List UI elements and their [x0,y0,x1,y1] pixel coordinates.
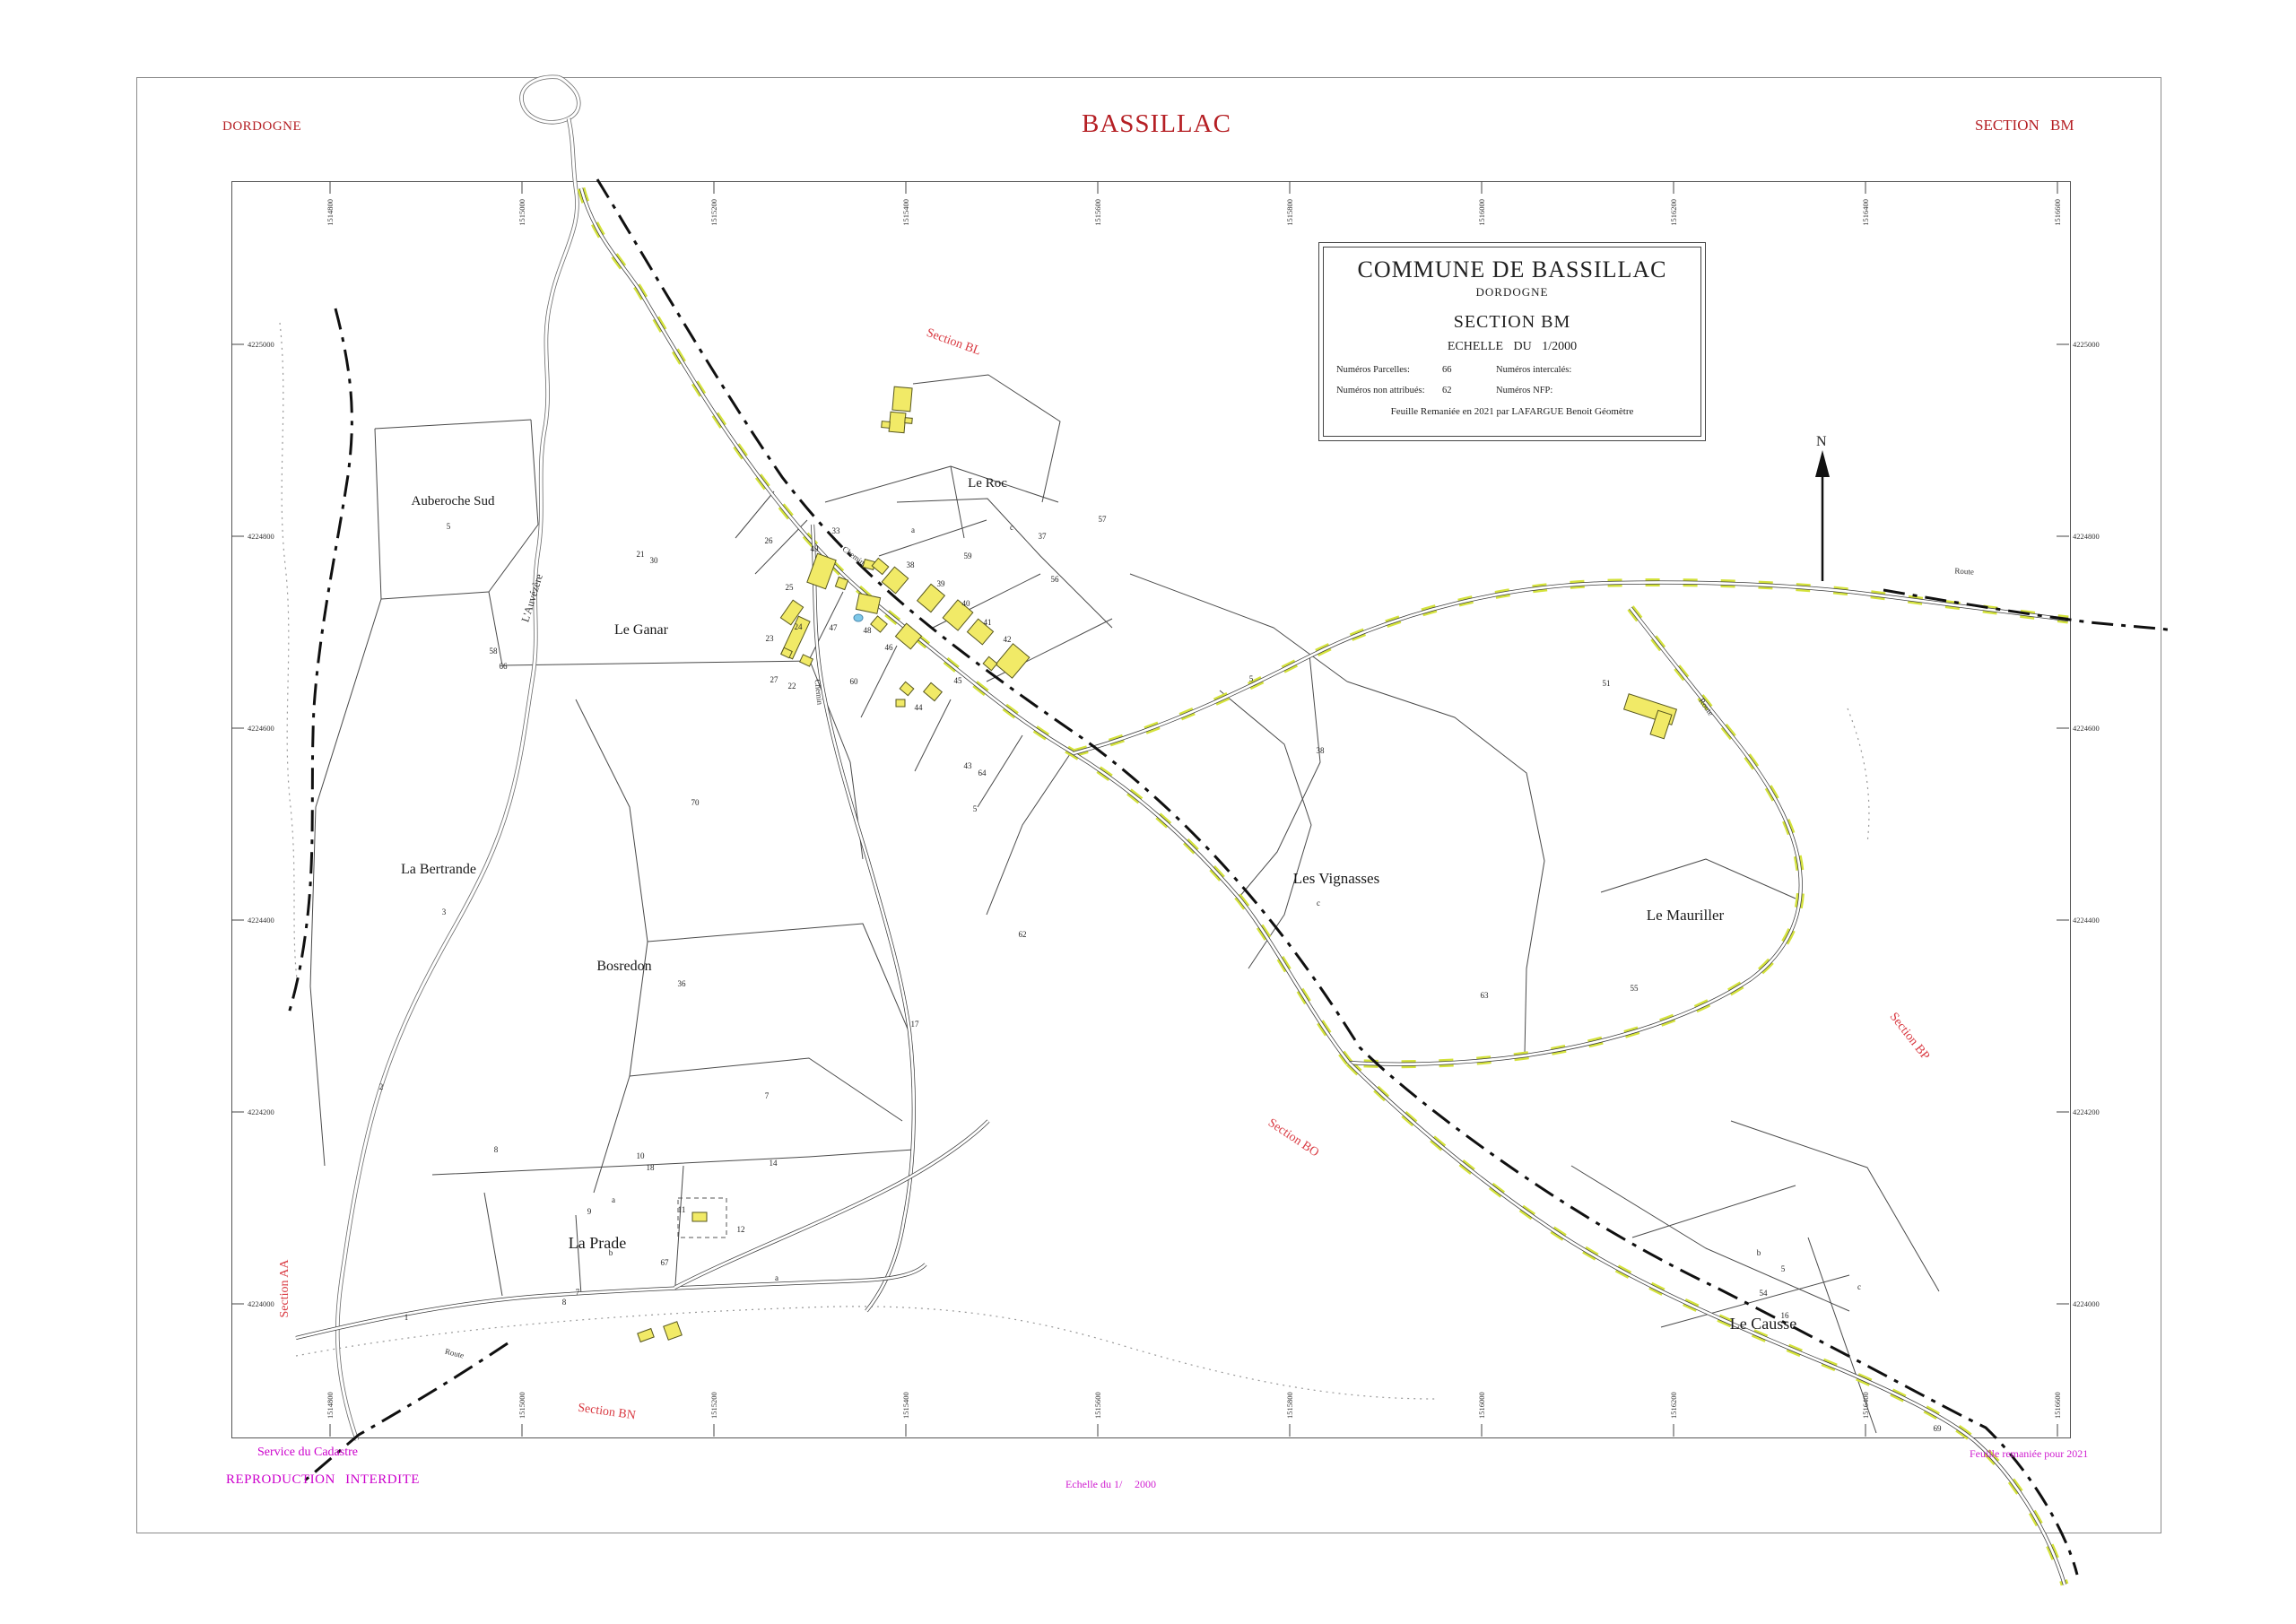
parcel-number: 1 [404,1313,409,1322]
non-attribues-label: Numéros non attribués: [1336,386,1442,395]
roads-layer [296,188,2068,1585]
place-name: La Bertrande [401,862,476,877]
road [1349,608,1801,1064]
map-label: 1514800 [326,1392,335,1419]
title-block-inner: COMMUNE DE BASSILLAC DORDOGNE SECTION BM… [1323,247,1701,437]
parcel-boundary [375,429,489,599]
parcel-boundary [484,1193,502,1296]
parcel-number: 5 [973,804,978,813]
parcel-boundary [375,420,531,429]
commune-department: DORDOGNE [1324,285,1700,300]
parcel-boundary [951,466,964,538]
place-name: Le Roc [968,476,1007,491]
parcel-number: 38 [1317,746,1326,755]
building [918,584,945,612]
map-label: 1515400 [901,1392,910,1419]
parcel-number: b [1757,1248,1761,1257]
building [900,682,914,695]
parcel-number: 43 [964,761,973,770]
parcel-boundary [1601,859,1796,899]
parcel-boundary [1571,1166,1849,1311]
north-arrow: N [1815,434,1830,581]
road-edge-marking [1074,583,2068,754]
streams-layer [280,323,1869,1399]
title-block: COMMUNE DE BASSILLAC DORDOGNE SECTION BM… [1318,242,1706,441]
parcel-number: 14 [770,1159,778,1168]
building [983,656,997,670]
parcel-number: 23 [766,634,775,643]
parcelles-label: Numéros Parcelles: [1336,365,1442,375]
road-casing [581,188,1349,1063]
map-label: 4225000 [2073,340,2100,349]
stream [1848,708,1869,843]
cadastral-map: 1514800151500015152001515400151560015158… [0,0,2296,1624]
parcel-boundary [576,699,648,1193]
parcel-number: 63 [1481,991,1490,1000]
section-name: Section BP [1887,1011,1933,1064]
nfp-value [1613,386,1684,395]
parcel-number: 7 [576,1288,580,1297]
parcel-number: 57 [1099,515,1108,524]
section-name: Section AA [278,1259,291,1318]
road-casing [1349,1063,2065,1585]
page-title: BASSILLAC [1082,109,1231,139]
section-name: Section BO [1265,1116,1321,1160]
commune-boundary [1883,590,2175,630]
parcel-number: 55 [1631,984,1639,993]
parcel-boundary [1130,574,1347,682]
parcel-number: 62 [1019,930,1027,939]
building [638,1329,654,1342]
parcel-number: 16 [1781,1311,1790,1320]
path-name: Route [444,1347,465,1360]
map-label: 4224200 [2073,1107,2100,1116]
parcel-number: 70 [691,798,700,807]
map-label: 1516200 [1669,199,1678,226]
building [856,594,880,614]
road-edge-marking [1349,1063,2065,1585]
map-label: 1515800 [1285,1392,1294,1419]
intercales-label: Numéros intercalés: [1496,365,1613,375]
parcel-number: 5 [447,522,451,531]
road [674,1121,988,1288]
map-label: 1515400 [901,199,910,226]
echelle-value: 2000 [1135,1478,1156,1491]
service-du-cadastre-label: Service du Cadastre [257,1446,358,1460]
revision-note: Feuille Remaniée en 2021 par LAFARGUE Be… [1324,406,1700,417]
map-label: 4224600 [2073,724,2100,733]
parcel-number: 38 [907,560,916,569]
echelle-label: Echelle du 1/ [1065,1478,1122,1491]
map-label: 1515000 [517,1392,526,1419]
parcelles-value: 66 [1442,365,1496,375]
road [813,525,914,1311]
road [581,188,1349,1063]
road-edge-marking [581,188,1349,1063]
commune-scale: ECHELLE DU 1/2000 [1324,340,1700,354]
parcel-number: a [612,1195,615,1204]
parcel-boundary [648,924,909,1033]
commune-section: SECTION BM [1324,312,1700,333]
building [996,644,1030,678]
numbering-table: Numéros Parcelles: 66 Numéros intercalés… [1336,365,1690,395]
pool [854,614,863,621]
road-casing [813,525,914,1311]
section-name: Section BL [925,326,983,359]
map-label: 1515200 [709,199,718,226]
parcel-number: 5 [1249,674,1254,683]
parcel-number: 11 [678,1205,686,1214]
parcel-number: 24 [795,622,804,631]
parcel-boundary [735,491,774,538]
map-label: 1515000 [517,199,526,226]
parcel-number: a [911,525,915,534]
map-label: 1514800 [326,199,335,226]
parcel-number: 60 [850,677,859,686]
map-label: 1515600 [1093,199,1102,226]
map-label: 4224000 [2073,1299,2100,1308]
buildings-layer [638,386,1677,1342]
parcel-number: 47 [830,623,839,632]
parcel-number: 17 [911,1020,920,1029]
parcel-number: 30 [650,556,659,565]
path-name: Chemin [813,679,825,706]
map-label: 4224000 [248,1299,274,1308]
parcel-number: 26 [765,536,774,545]
map-label: 1515200 [709,1392,718,1419]
road-casing [1349,608,1801,1064]
road [1074,583,2068,754]
path-name: Chemin [840,544,866,567]
parcel-boundary [1731,1121,1939,1291]
river-layer [337,77,578,1440]
parcel-boundary [1239,655,1320,897]
building [924,682,943,700]
building [872,558,889,574]
place-name: Auberoche Sud [412,494,495,508]
intercales-value [1613,365,1684,375]
parcels-layer [310,375,1939,1433]
parcel-boundary [1347,682,1544,1054]
place-name: Le Mauriller [1647,907,1725,924]
parcel-number: 25 [786,583,795,592]
parcel-boundary [675,1166,683,1285]
parcel-number: 22 [788,682,796,690]
parcel-boundary [825,466,1058,502]
parcel-boundary [630,1058,902,1121]
parcel-number: 41 [984,618,992,627]
parcel-number: c [1857,1282,1861,1291]
map-label: 1516400 [1861,1392,1870,1419]
section-label: SECTION BM [1975,117,2074,135]
parcel-number: 56 [1051,575,1060,584]
map-label: 1515600 [1093,1392,1102,1419]
stream [296,1307,1435,1399]
building [889,412,906,432]
parcel-boundary [310,599,381,1166]
parcel-number: 37 [1039,532,1048,541]
map-label: 1516000 [1477,1392,1486,1419]
map-label: 4224800 [2073,532,2100,541]
building [807,553,836,588]
parcel-number: 36 [678,979,687,988]
parcel-boundary [807,592,843,664]
building [882,421,891,429]
parcel-number: 9 [587,1207,592,1216]
building [664,1322,683,1341]
commune-title: COMMUNE DE BASSILLAC [1324,256,1700,283]
parcel-number: b [609,1248,613,1257]
parcel-number: 49 [811,544,820,553]
reproduction-interdite-label: REPRODUCTION INTERDITE [226,1472,420,1488]
parcel-boundary [502,661,810,665]
map-label: 1516400 [1861,199,1870,226]
parcel-number: 8 [562,1298,567,1307]
parcel-number: 42 [1004,635,1012,644]
parcel-number: 67 [661,1258,670,1267]
place-name: Bosredon [596,959,651,974]
map-label: 1516000 [1477,199,1486,226]
parcel-number: 66 [500,662,509,671]
parcel-boundary [987,751,1072,915]
parcel-boundary [1220,690,1311,968]
map-label: 4224400 [2073,916,2100,925]
north-arrow-head [1815,450,1830,477]
river-water [337,118,577,1440]
parcel-number: 69 [1934,1424,1943,1433]
map-label: 4224600 [248,724,274,733]
north-arrow-letter: N [1816,434,1827,449]
parcel-number: 27 [770,675,779,684]
parcel-number: 58 [490,647,499,656]
grid-ticks-layer: 1514800151500015152001515400151560015158… [231,181,2100,1437]
parcel-number: 10 [637,1151,646,1160]
parcel-number: 51 [1603,679,1611,688]
parcel-number: 40 [962,599,971,608]
road-casing [674,1121,988,1288]
parcel-number: 54 [1760,1289,1769,1298]
path-name: L'Auvézère [518,572,545,623]
map-label: 1515800 [1285,199,1294,226]
section-name: Section BN [577,1402,636,1423]
parcel-boundary [879,520,987,556]
parcel-number: 18 [647,1163,656,1172]
parcel-number: 3 [442,908,447,916]
building [882,567,908,594]
parcel-number: 45 [954,676,963,685]
department-label: DORDOGNE [222,119,301,135]
building [905,418,912,424]
nfp-label: Numéros NFP: [1496,386,1613,395]
building [896,699,905,707]
building [871,616,887,632]
parcel-number: 5 [1781,1264,1786,1273]
road-casing [1074,583,2068,754]
building [692,1212,707,1221]
cadastral-sheet: { "page":{"title":"BASSILLAC","departmen… [0,0,2296,1624]
parcel-number: 12 [737,1225,745,1234]
parcel-number: 8 [494,1145,499,1154]
parcel-number: 46 [885,643,894,652]
parcel-number: 64 [978,769,987,777]
parcel-number: a [775,1273,778,1282]
parcel-boundary [489,420,538,665]
parcel-number: 33 [832,526,841,535]
parcel-boundary [576,1215,581,1295]
parcel-number: 21 [637,550,645,559]
road-casing [296,1264,926,1338]
non-attribues-value: 62 [1442,386,1496,395]
parcel-number: 44 [915,703,924,712]
place-name: Le Ganar [614,622,669,638]
river-banks [337,118,577,1440]
stream [280,323,298,986]
parcel-number: c [1317,899,1320,908]
map-label: 1516600 [2053,1392,2062,1419]
commune-boundary [289,308,352,1013]
map-label: 4224400 [248,916,274,925]
place-name: Les Vignasses [1293,870,1379,887]
parcel-number: 48 [864,626,873,635]
path-name: Route [1954,566,1974,576]
building [892,386,912,412]
parcel-number: 7 [765,1091,770,1100]
parcel-boundary [432,1150,913,1175]
parcel-number: 2 [379,1082,384,1091]
map-label: 1516200 [1669,1392,1678,1419]
map-label: 4225000 [248,340,274,349]
parcel-boundary [1632,1185,1796,1238]
boundaries-layer [289,179,2175,1575]
map-label: 1516600 [2053,199,2062,226]
parcel-number: 39 [937,579,946,588]
road [296,1264,926,1338]
place-name: La Prade [569,1234,626,1252]
map-label: 4224800 [248,532,274,541]
road [1349,1063,2065,1585]
road-edge-marking [1349,608,1801,1064]
parcel-number: 59 [964,551,973,560]
parcel-number: c [1010,523,1013,532]
building [895,623,921,649]
feuille-remaniee-label: Feuille remaniée pour 2021 [1970,1447,2088,1461]
labels-layer: Auberoche SudLe GanarLe RocLa BertrandeB… [278,326,1974,1433]
parcel-boundary [861,646,897,717]
map-label: 4224200 [248,1107,274,1116]
